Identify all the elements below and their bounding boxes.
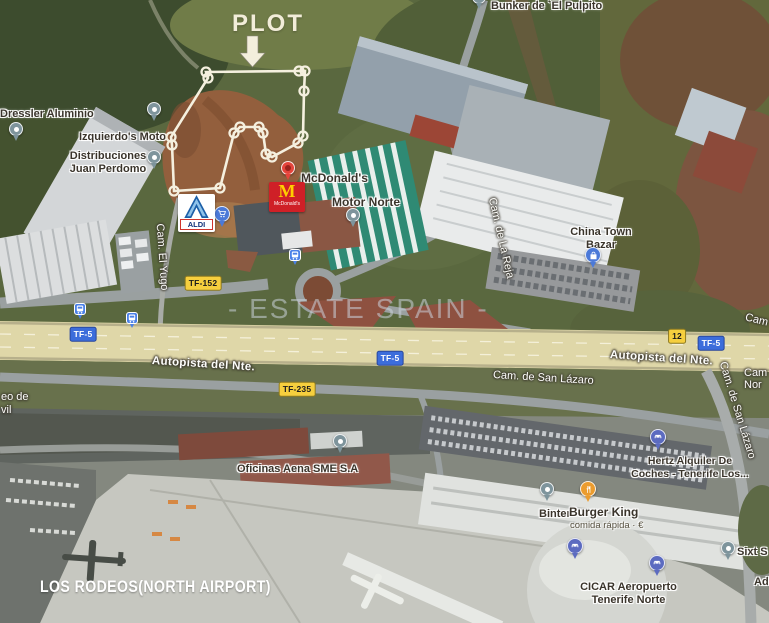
cicar-car-rental-pin-1[interactable]: [567, 538, 583, 559]
distribuciones-pin[interactable]: [146, 150, 162, 169]
aldi-logo[interactable]: ALDI: [178, 194, 215, 232]
pin-dot-icon: [152, 107, 157, 112]
aldi-shopping-cart-pin[interactable]: [214, 206, 230, 227]
mcdonalds-wordmark: McDonald's: [274, 201, 300, 207]
mcdonalds-logo[interactable]: M McDonald's: [269, 182, 305, 212]
bus-stop-icon-1[interactable]: [74, 303, 86, 319]
cicar-car-rental-pin-2[interactable]: [649, 555, 665, 576]
bus-icon: [76, 305, 84, 314]
bunker-pin[interactable]: [471, 0, 487, 9]
pin-dot-icon: [285, 165, 291, 171]
plot-arrow-icon: [240, 36, 265, 67]
map-viewport[interactable]: - ESTATE SPAIN - PLOT LOS RODEOS(NORTH A…: [0, 0, 769, 623]
pin-dot-icon: [726, 546, 731, 551]
dressler-pin[interactable]: [8, 122, 24, 141]
bus-icon: [128, 314, 136, 323]
plot-boundary-overlay: [0, 0, 769, 623]
pin-dot-icon: [152, 155, 157, 160]
pin-dot-icon: [351, 213, 356, 218]
pin-dot-icon: [14, 127, 19, 132]
pin-dot-icon: [545, 487, 550, 492]
binter-pin[interactable]: [539, 482, 555, 501]
sixt-pin[interactable]: [720, 541, 736, 560]
bus-stop-icon-3[interactable]: [289, 249, 301, 265]
izquierdos-moto-pin[interactable]: [146, 102, 162, 121]
china-town-shopping-pin[interactable]: [585, 247, 601, 268]
aldi-wordmark: ALDI: [180, 219, 213, 230]
oficinas-aena-pin[interactable]: [332, 434, 348, 453]
car-icon: [570, 541, 580, 551]
shopping-bag-icon: [589, 251, 598, 260]
bus-stop-icon-2[interactable]: [126, 312, 138, 328]
shopping-cart-icon: [217, 209, 227, 219]
hertz-car-rental-pin[interactable]: [650, 429, 666, 450]
mcdonalds-pin[interactable]: [280, 161, 296, 180]
golden-arches-icon: M: [279, 182, 296, 201]
fork-knife-icon: [584, 485, 593, 494]
burger-king-restaurant-pin[interactable]: [580, 481, 596, 502]
aldi-triangle-icon: [183, 195, 210, 219]
car-icon: [652, 558, 662, 568]
airport-caption: LOS RODEOS(NORTH AIRPORT): [40, 577, 271, 597]
pin-dot-icon: [338, 439, 343, 444]
bus-icon: [291, 251, 299, 260]
car-icon: [653, 432, 663, 442]
plot-annotation-label: PLOT: [232, 10, 304, 38]
motor-norte-pin[interactable]: [345, 208, 361, 227]
